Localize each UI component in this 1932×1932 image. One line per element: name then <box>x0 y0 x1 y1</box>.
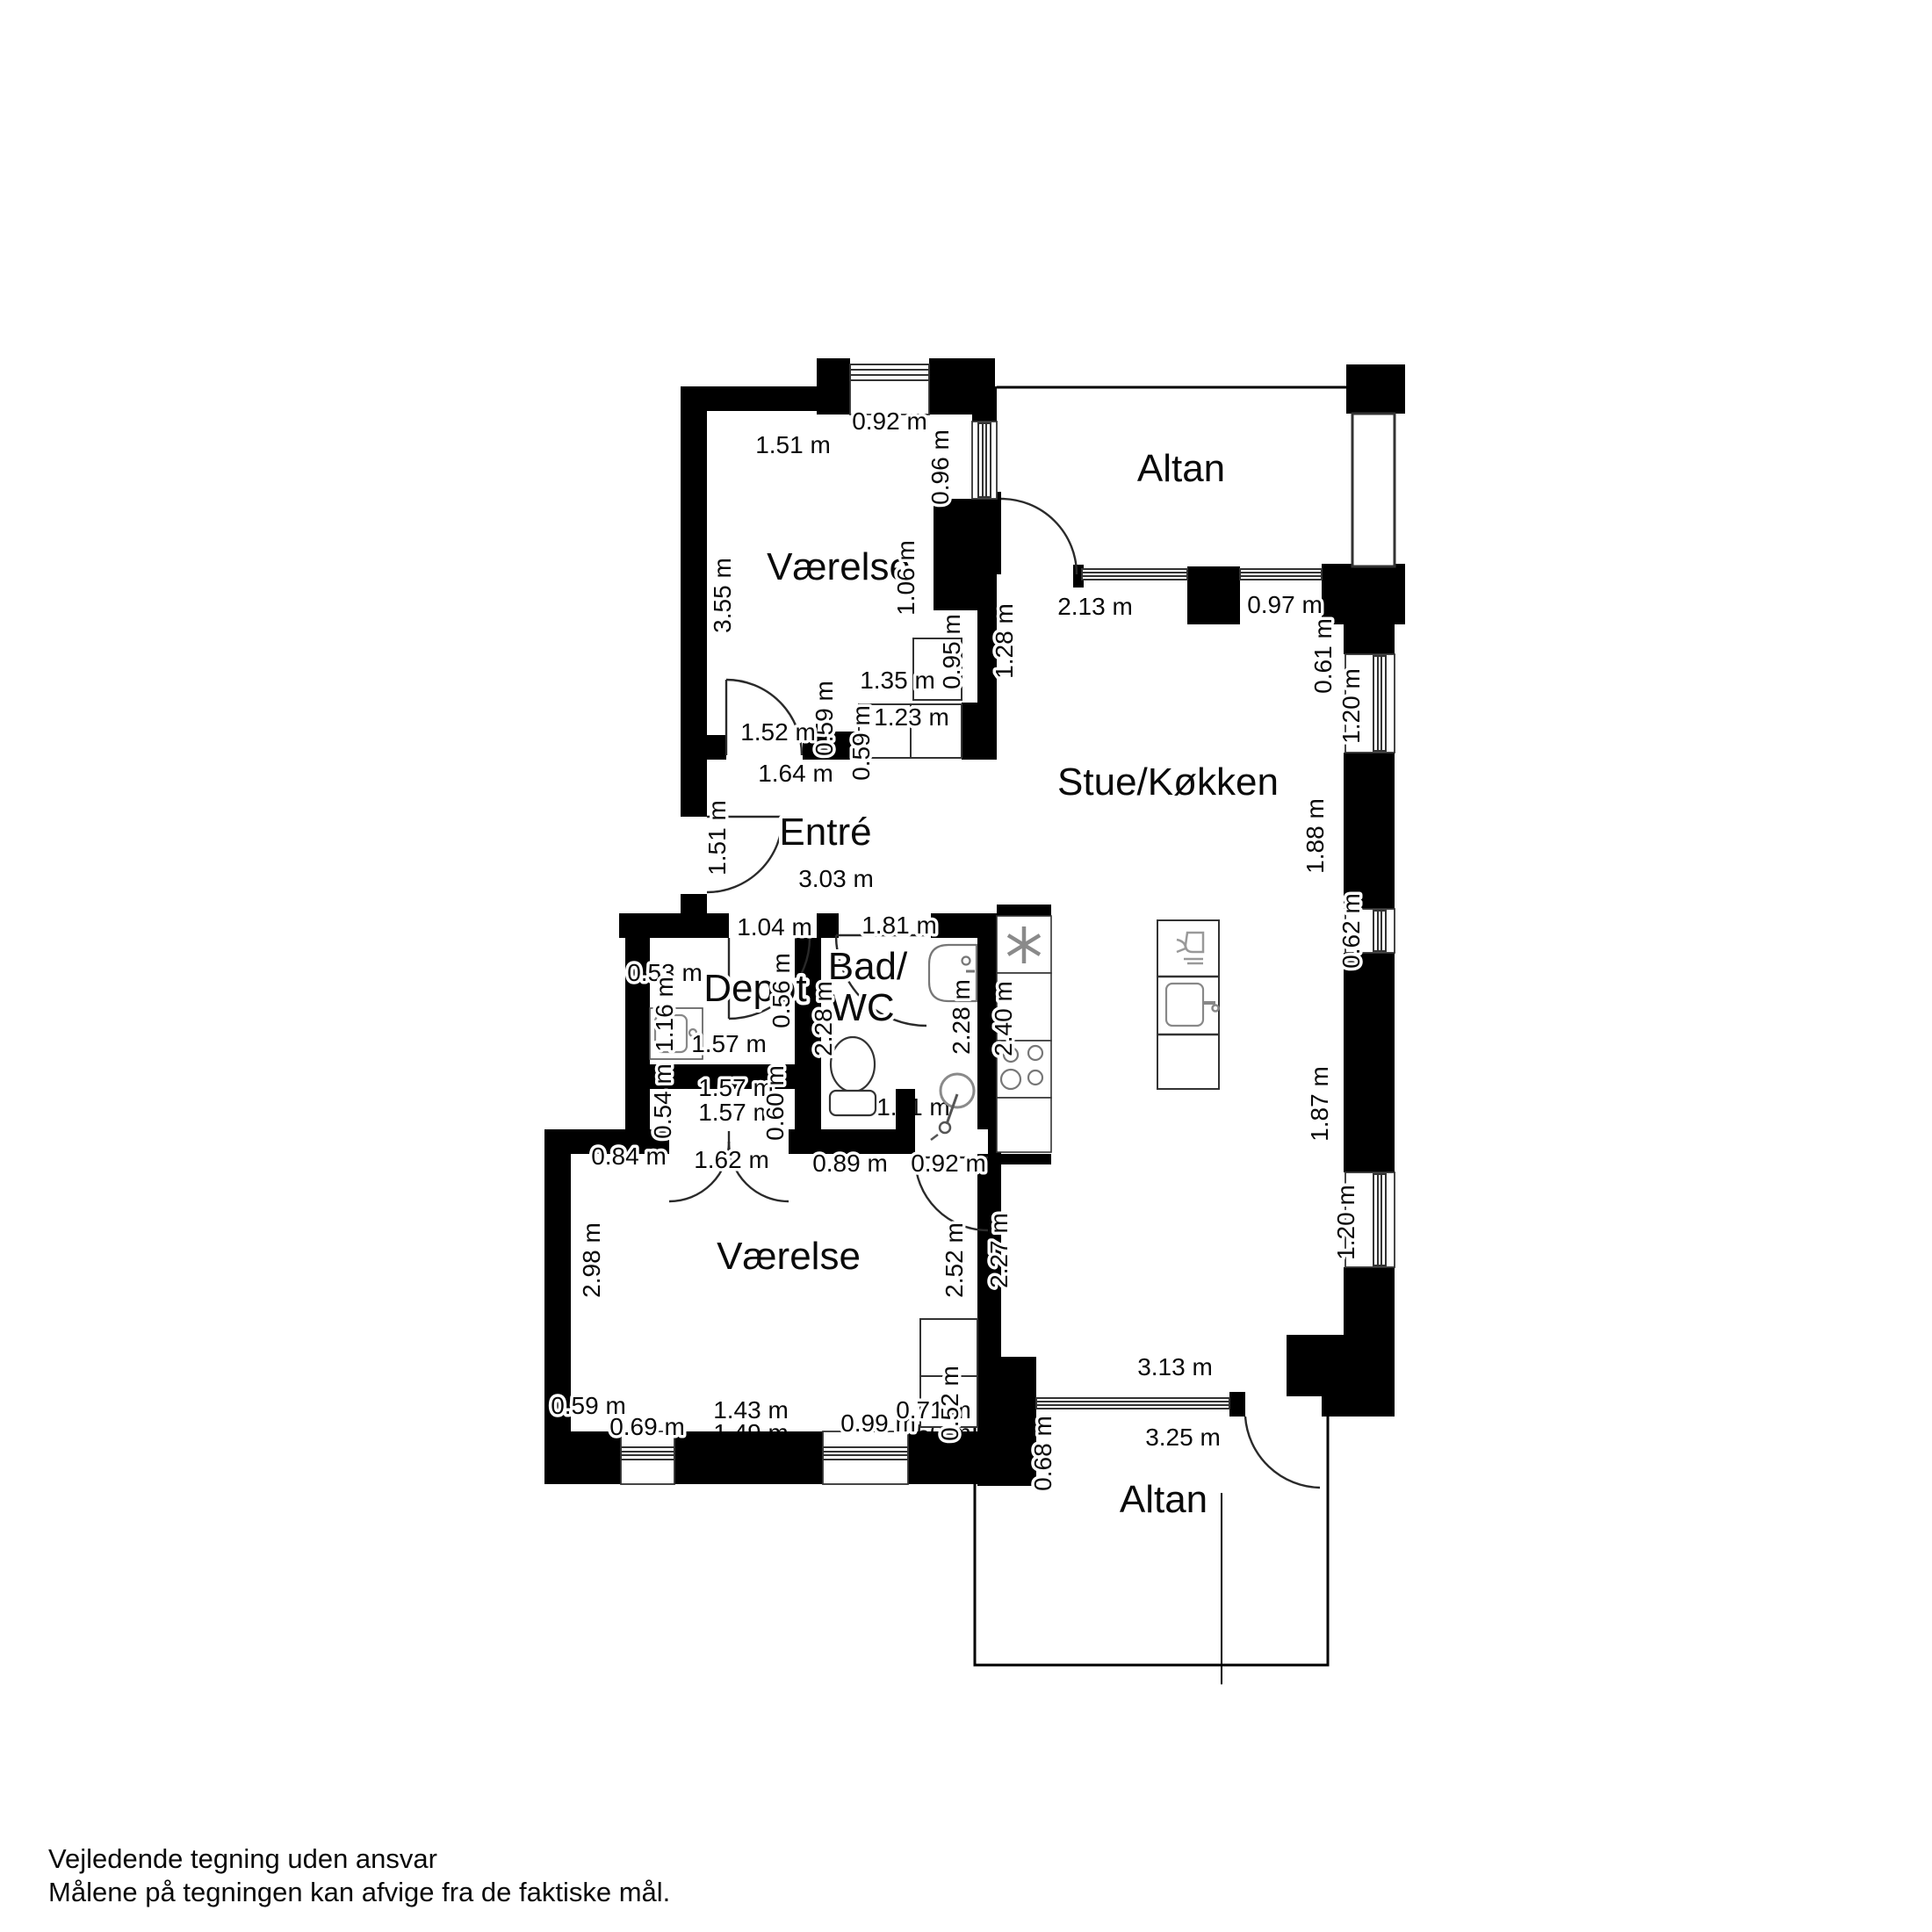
dimension-label: 3.13 m <box>1137 1353 1213 1381</box>
dimension-label: 1.57 m <box>691 1030 767 1057</box>
dimension-label: 3.03 m <box>798 865 874 892</box>
disclaimer-line-2: Målene på tegningen kan afvige fra de fa… <box>48 1876 670 1909</box>
door-lower-balcony <box>1245 1417 1320 1488</box>
dimension-label: 1.04 m <box>737 913 812 941</box>
dimension-label: 2.28 m <box>948 979 975 1055</box>
disclaimer-line-1: Vejledende tegning uden ansvar <box>48 1842 670 1876</box>
dimension-label: 1.64 m <box>758 760 833 787</box>
dimension-label: 1.06 m <box>892 540 919 616</box>
window-glazing <box>850 364 929 380</box>
balcony-window-glazing <box>1036 1398 1229 1409</box>
dimension-label: 0.61 m <box>1309 618 1337 694</box>
dimension-label: 0.96 m <box>926 429 954 505</box>
dimension-label: 3.25 m <box>1145 1424 1221 1451</box>
room-label: Værelse <box>717 1235 861 1278</box>
dimension-label: 1.52 m <box>740 718 816 746</box>
dimension-label: 1.88 m <box>1301 798 1329 874</box>
room-label: Stue/Køkken <box>1057 761 1279 804</box>
kitchen-cabinet <box>997 1098 1051 1152</box>
window-glazing <box>1373 1174 1386 1265</box>
dimension-label: 1.62 m <box>694 1146 769 1173</box>
dimension-label: 0.84 m <box>591 1143 667 1170</box>
room-label: Entré <box>779 811 871 854</box>
dimension-label: 0.52 m <box>936 1366 963 1441</box>
dimension-label: 0.54 m <box>649 1063 676 1139</box>
upper-balcony-rail <box>1352 414 1395 566</box>
window-glazing <box>823 1447 908 1460</box>
dimension-label: 0.95 m <box>938 614 965 689</box>
room-label: Altan <box>1137 447 1225 490</box>
dimension-label: 1.20 m <box>1332 1185 1359 1260</box>
dimension-label: 1.28 m <box>991 603 1018 679</box>
dimension-label: 1.51 m <box>755 431 831 458</box>
dimension-label: 2.98 m <box>578 1222 605 1298</box>
dimension-label: 2.28 m <box>810 981 837 1056</box>
kitchen-island <box>1157 920 1219 1089</box>
room-label: Bad/ <box>828 945 908 988</box>
dimension-label: 0.92 m <box>911 1150 986 1177</box>
dimension-label: 0.56 m <box>768 953 795 1028</box>
dimension-label: 0.60 m <box>761 1065 789 1141</box>
dimension-label: 1.16 m <box>651 977 678 1052</box>
dimension-label: 1.43 m <box>713 1396 789 1424</box>
dimension-label: 0.68 m <box>1029 1416 1056 1491</box>
dimension-label: 0.92 m <box>852 407 927 435</box>
dimension-label: 1.20 m <box>1337 668 1365 744</box>
dimension-label: 2.52 m <box>941 1222 968 1298</box>
door-upper-balcony <box>1001 499 1077 574</box>
disclaimer: Vejledende tegning uden ansvar Målene på… <box>48 1842 670 1909</box>
dimension-label: 1.51 m <box>703 800 731 876</box>
dimension-label: 0.97 m <box>1247 591 1323 618</box>
room-label: Værelse <box>767 545 911 588</box>
walls <box>544 358 1405 1486</box>
room-label: WC <box>830 986 894 1029</box>
dimension-label: 0.89 m <box>812 1150 888 1177</box>
dimension-label: 0.62 m <box>1337 893 1365 969</box>
floorplan-page: 1.11 m1.49 m0.50 m <box>0 0 1932 1932</box>
dimension-label: 0.69 m <box>609 1413 685 1440</box>
window-glazing <box>1373 911 1386 951</box>
dimension-label: 1.23 m <box>874 703 949 731</box>
dimension-label: 0.59 m <box>847 705 875 781</box>
window-glazing <box>978 423 991 497</box>
dimension-label: 2.40 m <box>990 981 1017 1056</box>
floorplan-drawing: 1.11 m1.49 m0.50 m <box>0 0 1932 1932</box>
dimension-label: 3.55 m <box>709 558 736 633</box>
window-glazing <box>621 1447 674 1460</box>
dimension-label: 2.27 m <box>985 1213 1013 1288</box>
window-glazing <box>1373 656 1386 751</box>
dimension-label: 1.87 m <box>1306 1066 1333 1142</box>
dimension-label: 1.81 m <box>861 912 937 939</box>
dimension-label: 2.13 m <box>1057 593 1133 620</box>
dimension-label: 1.35 m <box>860 667 935 694</box>
room-label: Altan <box>1120 1478 1207 1521</box>
